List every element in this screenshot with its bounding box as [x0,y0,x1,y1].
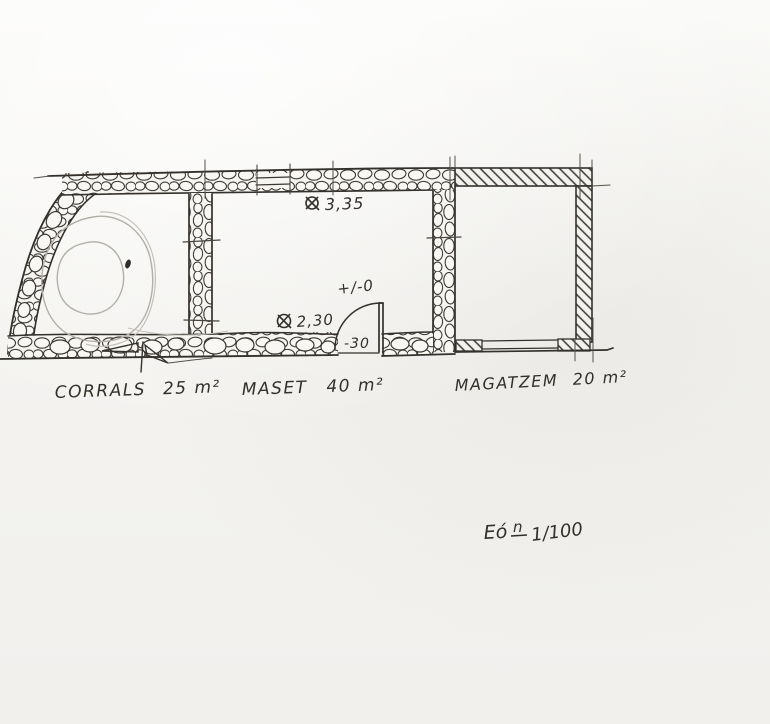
scale-note: Eó n 1/100 [483,518,584,546]
room-name-corrals: CORRALS [54,380,146,403]
curved-stone-wall [8,172,98,354]
room-label-corrals: CORRALS 25 m² [54,377,221,403]
room-name-magatzem: MAGATZEM [454,371,558,395]
walls [0,154,613,372]
boulder-dark-spot [124,259,132,269]
height-symbol-main [306,197,319,210]
height-symbol-door [278,314,292,328]
scale-underline [511,535,527,536]
interior-wall-1 [183,193,220,352]
scale-superscript: n [513,518,523,536]
room-label-maset: MASET 40 m² [241,375,384,400]
floor-plan-drawing: 3,35 2,30 +/-0 -30 CORRALS 25 m² MASET 4… [0,0,770,724]
room-area-maset: 40 m² [326,375,385,397]
room-label-magatzem: MAGATZEM 20 m² [454,367,628,395]
scale-prefix: Eó [483,521,508,544]
height-door-value: 2,30 [296,310,335,331]
bottom-stone-wall [0,332,455,359]
level-zero-mark: +/-0 [337,276,375,298]
hatched-top-wall [455,168,592,186]
hatched-right-wall [576,186,592,342]
room-area-magatzem: 20 m² [572,367,628,389]
dimension-annotations: 3,35 2,30 +/-0 -30 [278,194,375,352]
height-main-value: 3,35 [324,194,364,214]
magatzem-bottom-wall [455,339,613,352]
room-name-maset: MASET [241,378,307,400]
scale-ratio: 1/100 [530,519,584,546]
room-area-corrals: 25 m² [163,377,222,399]
sketch-paper: 3,35 2,30 +/-0 -30 CORRALS 25 m² MASET 4… [0,0,770,724]
interior-wall-2 [427,186,461,352]
level-step-mark: -30 [344,336,370,352]
top-stone-wall [48,164,455,195]
